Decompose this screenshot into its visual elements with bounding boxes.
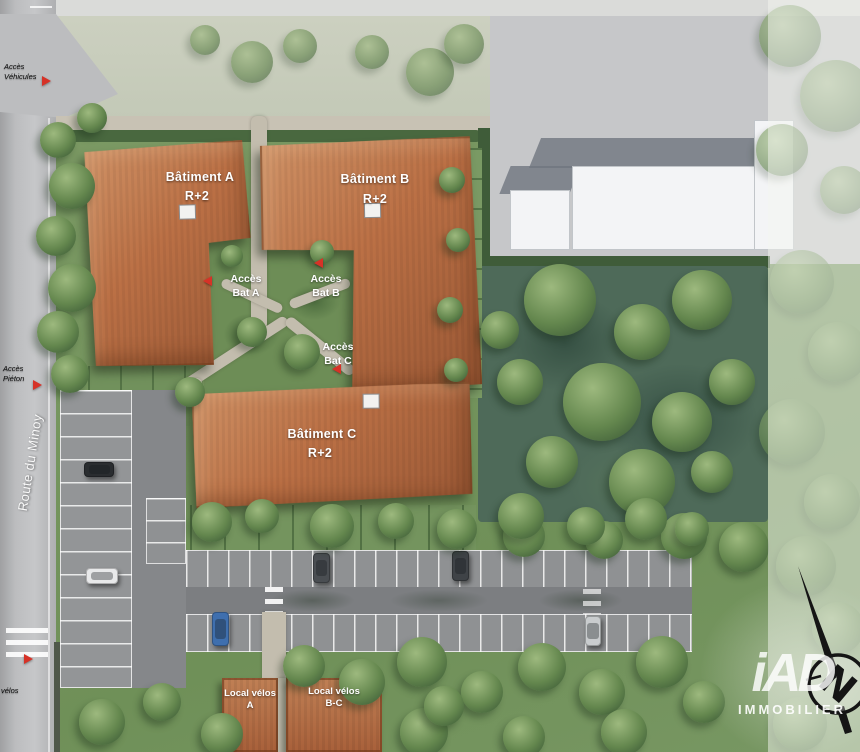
car-silver [585,616,601,646]
warehouse-annex [510,190,570,250]
neighbour-strip-top [56,16,490,118]
warehouse-building [572,166,758,250]
parking-aisle-south [186,587,692,614]
gardens-south [190,505,476,551]
tree-icon [719,522,769,572]
top-road [0,0,860,16]
pond [478,266,768,522]
building-a-floors: R+2 [142,189,252,203]
tree-icon [79,699,125,745]
building-c-label: Bâtiment C [267,427,377,441]
skylight [180,205,195,218]
building-b-label: Bâtiment B [320,172,430,186]
tree-icon [400,708,448,752]
access-b-label: AccèsBat B [296,272,356,300]
tree-icon [579,669,625,715]
logo-main: iAD [733,646,851,700]
tree-icon [424,686,464,726]
shed-gap-path [278,678,286,752]
building-a-label: Bâtiment A [145,170,255,184]
pedestrian-crossing [265,587,283,614]
parking-row-north [186,550,692,588]
tree-icon [51,355,89,393]
retaining-wall [54,642,60,752]
tree-icon [143,683,181,721]
tree-icon [503,716,545,752]
skylight [364,395,379,408]
access-a-label: AccèsBat A [216,272,276,300]
path-to-sheds [262,612,286,682]
access-a-arrow-icon [203,276,212,286]
entry-bike-label: vélos [1,686,19,696]
pedestrian-crossing [583,589,601,614]
building-c-floors: R+2 [265,446,375,460]
access-b-arrow-icon [314,258,323,268]
bike-shed-a-label: Local vélosA [224,688,276,712]
car-blue [212,612,229,646]
entry-vehicle-label: AccèsVéhicules [4,62,37,81]
tree-icon [461,671,503,713]
logo-sub: IMMOBILIER [733,702,851,717]
parking-special-stalls [146,498,186,564]
car-grey [313,553,330,583]
building-b-floors: R+2 [320,192,430,206]
sidewalk-line [48,118,50,752]
site-plan: Bâtiment A R+2 Bâtiment B R+2 Bâtiment C… [0,0,860,752]
bike-shed-bc-label: Local vélosB-C [290,686,378,710]
entry-pedestrian-label: AccèsPiéton [3,364,24,383]
warehouse-shadow [529,138,781,168]
car-black [84,462,114,477]
car-grey [452,551,469,581]
building-c [191,382,472,508]
road-marking [30,6,52,8]
access-c-arrow-icon [332,364,341,374]
entry-bike-arrow-icon [24,654,33,664]
car-white [86,568,118,584]
parking-column-west [60,390,132,688]
brand-logo: iAD IMMOBILIER [733,646,851,717]
entry-vehicle-arrow-icon [42,76,51,86]
tree-icon [601,709,647,752]
